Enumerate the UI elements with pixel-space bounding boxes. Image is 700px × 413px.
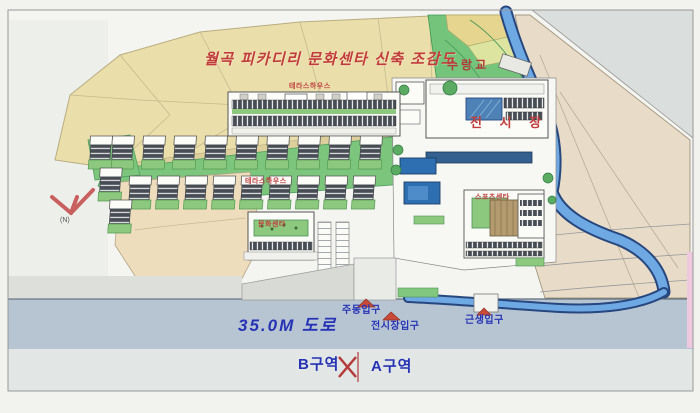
long-building [228, 92, 400, 136]
sports-center-label: 스포츠센타 [475, 194, 510, 201]
zone-a-label: A구역 [371, 359, 412, 374]
north-mark-label: (N) [60, 217, 70, 224]
bridge-label: 수랑교 [447, 59, 489, 71]
culture-center-building [244, 212, 318, 260]
terrace-lower-label: 테라스하우스 [245, 178, 287, 185]
zone-b-label: B구역 [298, 357, 339, 372]
scanned-site-plan-page: 월곡 피카디리 문화센타 신축 조감도 수랑교 전 시 장 테라스하우스 테라스… [0, 0, 700, 413]
page-title: 월곡 피카디리 문화센타 신축 조감도 [204, 52, 456, 67]
road-width-label: 35.0M 도로 [238, 317, 337, 334]
culture-center-label: 문화센타 [258, 221, 286, 228]
entrance-main-label: 주동입구 [342, 306, 381, 316]
road-bridge [474, 294, 498, 312]
exhibition-hall-label: 전 시 장 [470, 116, 548, 129]
entrance-exhibition-label: 전시장입구 [371, 322, 420, 332]
exhibition-complex [391, 78, 556, 270]
terrace-upper-label: 테라스하우스 [289, 83, 331, 90]
entrance-retail-label: 근생입구 [465, 316, 504, 326]
